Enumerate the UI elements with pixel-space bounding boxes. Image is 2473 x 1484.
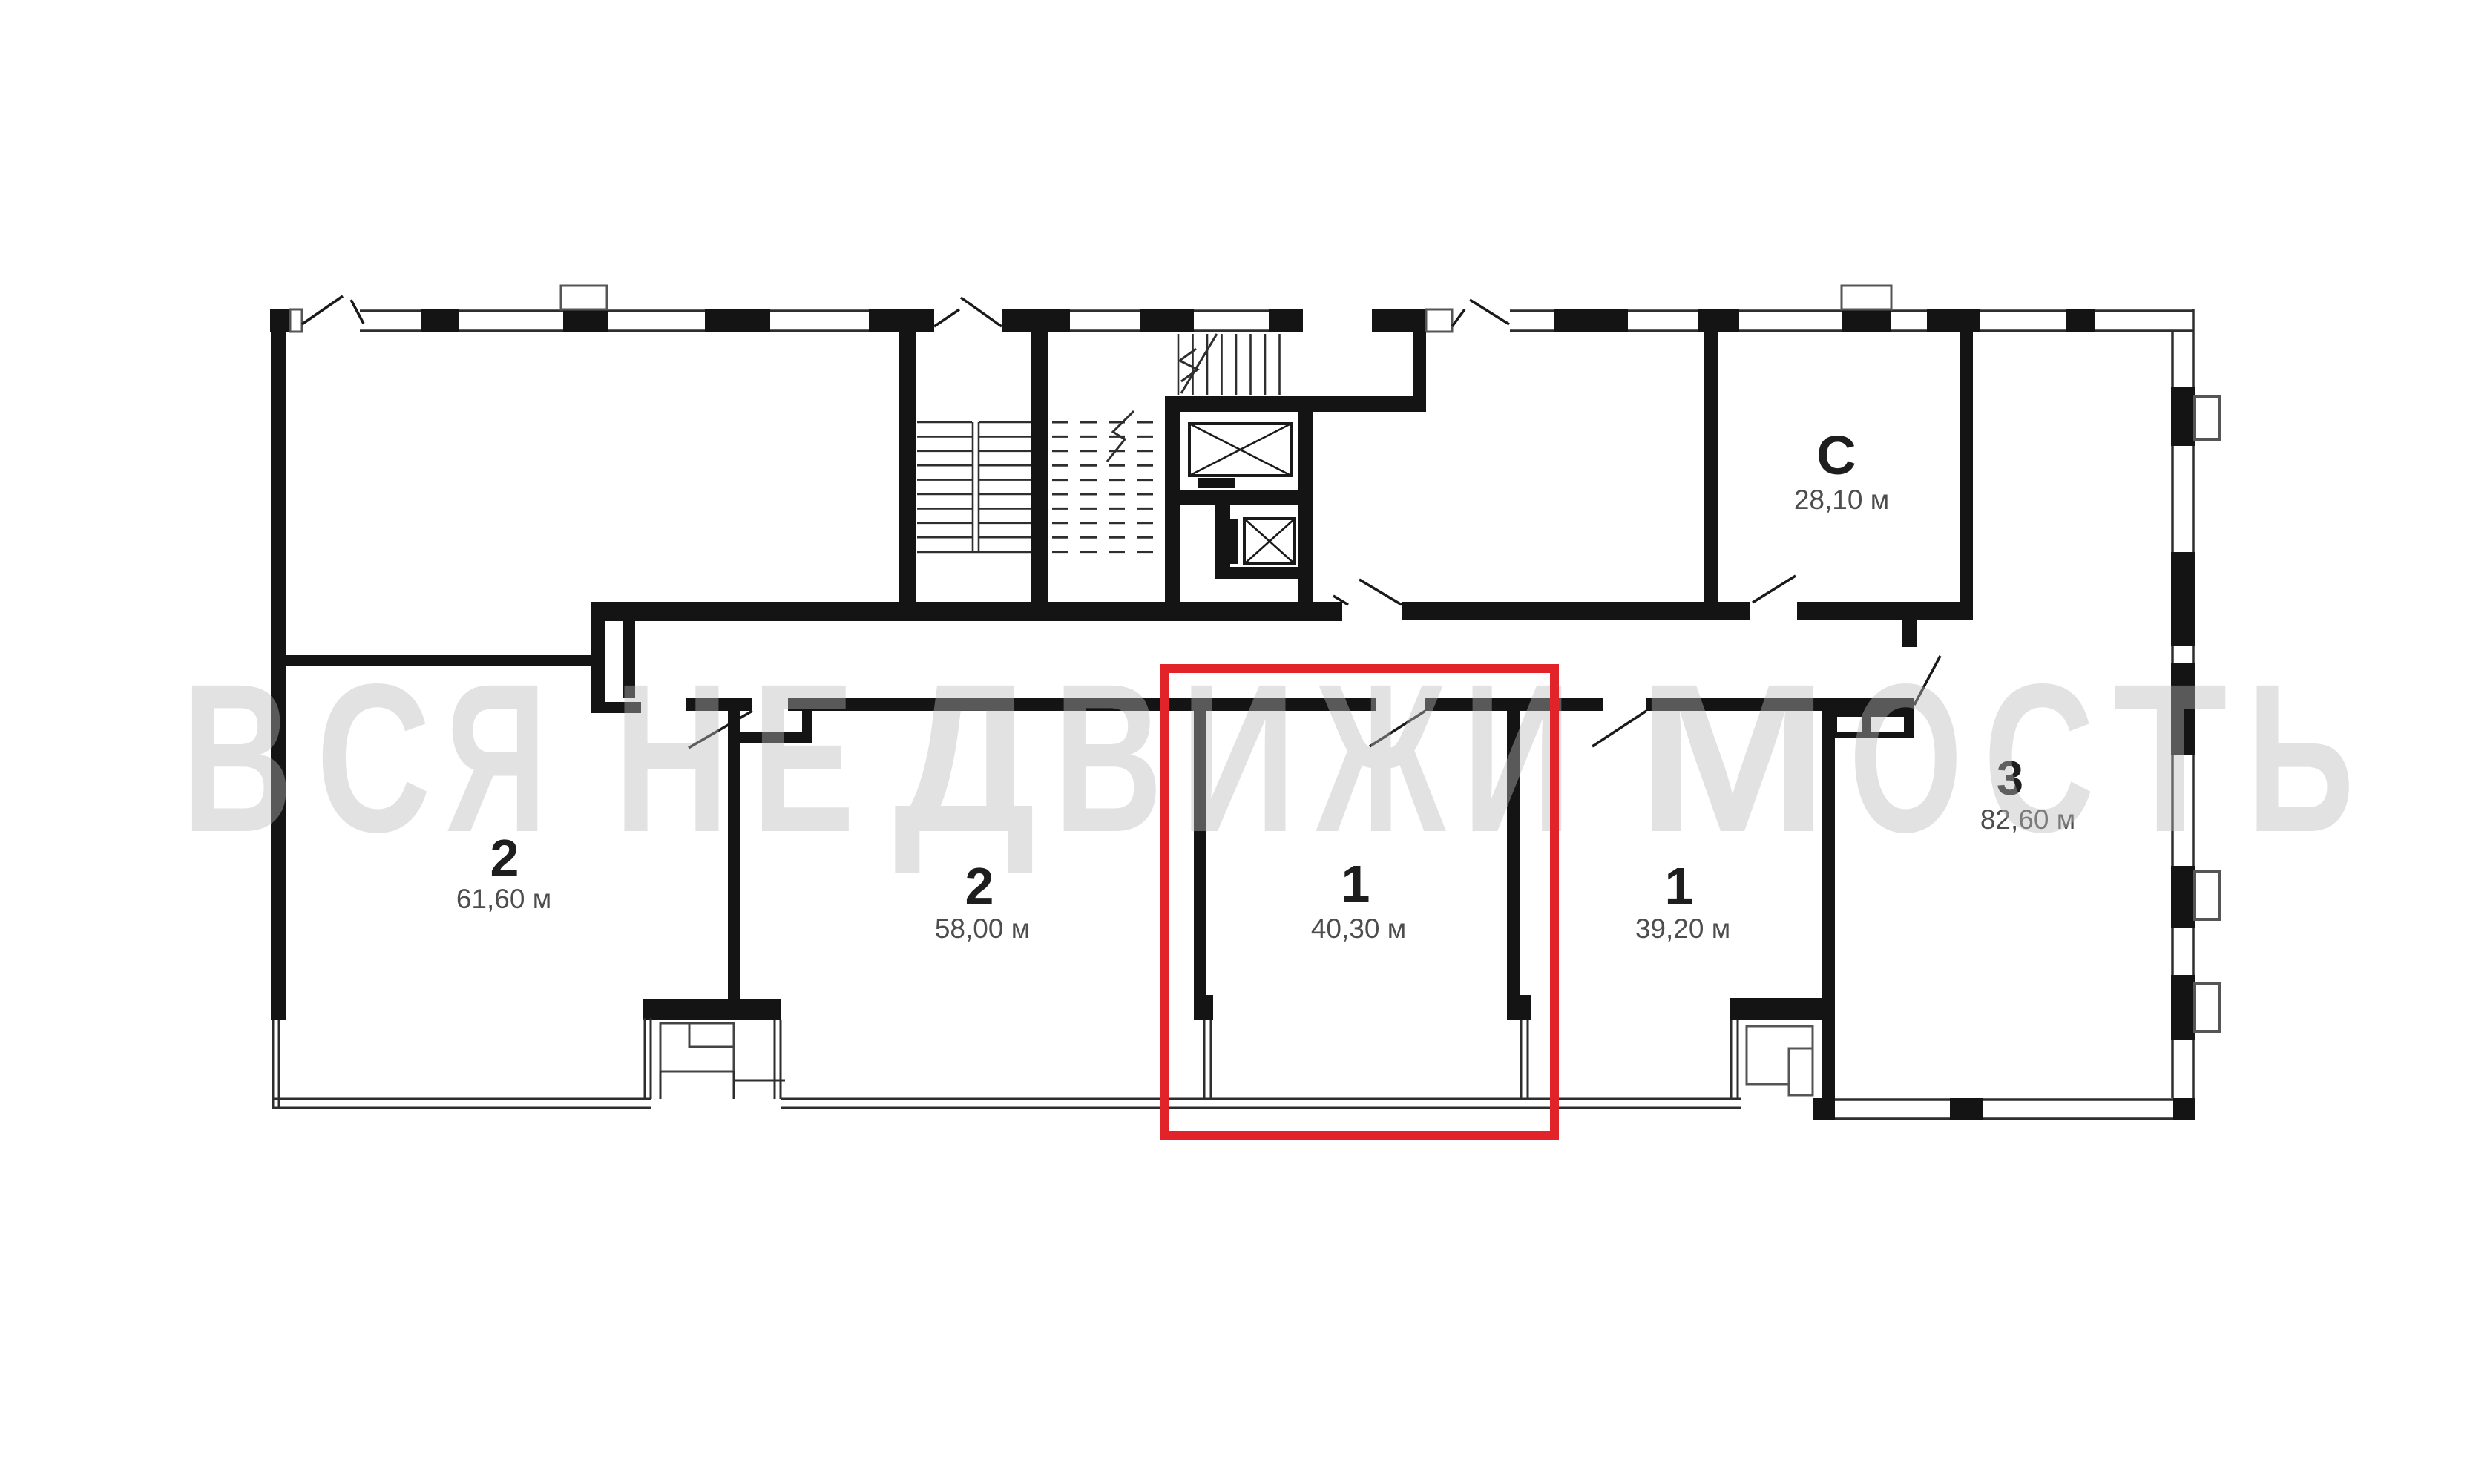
svg-text:Н: Н	[614, 640, 729, 876]
svg-text:М: М	[1636, 640, 1829, 876]
svg-text:C: C	[1816, 424, 1856, 486]
svg-text:Ж: Ж	[1314, 640, 1448, 876]
svg-text:О: О	[1849, 640, 1963, 876]
svg-text:Т: Т	[2113, 640, 2227, 876]
svg-text:Я: Я	[445, 640, 547, 876]
svg-text:В: В	[182, 640, 293, 876]
svg-text:С: С	[1983, 640, 2095, 876]
svg-text:40,30 м: 40,30 м	[1311, 913, 1406, 944]
svg-text:Д: Д	[893, 640, 1036, 876]
svg-text:39,20 м: 39,20 м	[1635, 913, 1730, 944]
svg-text:58,00 м: 58,00 м	[935, 913, 1030, 944]
svg-text:В: В	[1054, 640, 1163, 876]
svg-text:28,10 м: 28,10 м	[1794, 485, 1889, 515]
svg-text:С: С	[316, 640, 431, 876]
svg-text:Ь: Ь	[2247, 640, 2354, 876]
svg-text:И: И	[1180, 640, 1296, 876]
svg-text:61,60 м: 61,60 м	[456, 884, 551, 914]
svg-text:Е: Е	[752, 640, 855, 876]
